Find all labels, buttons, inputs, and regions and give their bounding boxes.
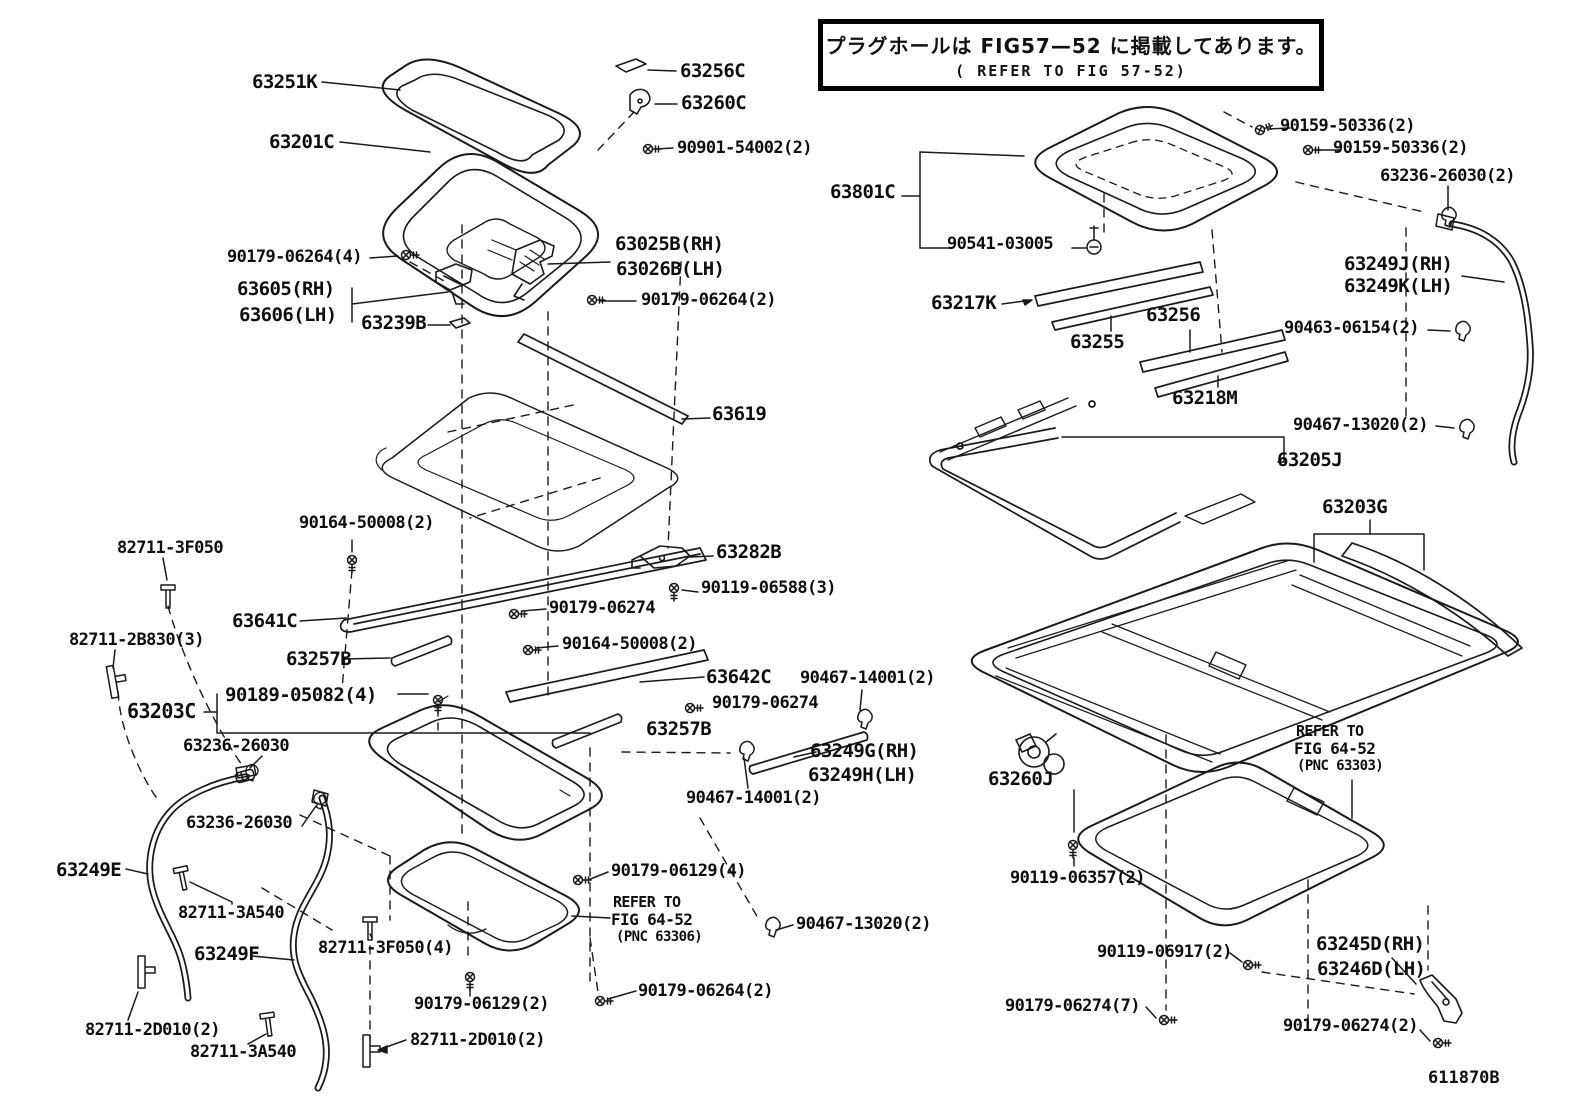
part-label-63249e: 63249E	[56, 861, 121, 880]
part-label-63217k: 63217K	[931, 294, 996, 313]
part-label-refer-306-2: FIG 64-52	[611, 912, 692, 928]
part-label-63205j: 63205J	[1277, 451, 1342, 470]
note-box: プラグホールは FIG57—52 に掲載してあります。 ( REFER TO F…	[818, 19, 1324, 91]
part-label-63257b-b: 63257B	[646, 720, 711, 739]
part-label-82711-3a540-a: 82711-3A540	[178, 905, 284, 922]
part-label-90179-06264-2a: 90179-06264(2)	[641, 292, 776, 309]
clip-fasteners	[106, 207, 1474, 1067]
part-label-90159-50336-b: 90159-50336(2)	[1333, 140, 1468, 157]
part-label-90179-06274-2r: 90179-06274(2)	[1283, 1018, 1418, 1035]
part-label-63203c: 63203C	[127, 701, 196, 721]
part-label-63201c: 63201C	[269, 133, 334, 152]
part-label-63218m: 63218M	[1172, 389, 1237, 408]
part-label-82711-2d010-a: 82711-2D010(2)	[85, 1022, 220, 1039]
part-label-90901-54002: 90901-54002(2)	[677, 140, 812, 157]
part-label-90119-06357: 90119-06357(2)	[1010, 870, 1145, 887]
screw-fasteners	[348, 121, 1452, 1047]
part-label-63236-26030-b: 63236-26030	[186, 815, 292, 832]
rail-63642C	[506, 650, 708, 702]
note-english-text: ( REFER TO FIG 57-52)	[955, 62, 1187, 80]
part-label-63257b-a: 63257B	[286, 650, 351, 669]
part-label-63641c: 63641C	[232, 612, 297, 631]
housing-frame-63203C	[369, 696, 602, 840]
part-label-90179-06264-4: 90179-06264(4)	[227, 249, 362, 266]
part-label-63605-rh: 63605(RH)	[237, 280, 335, 299]
removable-roof-glass-63801C	[1035, 107, 1277, 231]
part-label-82711-3f050-b: 82711-3F050(4)	[318, 940, 453, 957]
part-label-90189-05082: 90189-05082(4)	[225, 686, 377, 705]
part-label-63249h-lh: 63249H(LH)	[808, 766, 916, 785]
clip-63239B	[450, 318, 470, 328]
part-label-63642c: 63642C	[706, 668, 771, 687]
part-label-90179-06129-4: 90179-06129(4)	[611, 863, 746, 880]
part-label-63606-lh: 63606(LH)	[239, 306, 337, 325]
part-label-90119-06588: 90119-06588(3)	[701, 580, 836, 597]
part-label-90179-06274-a: 90179-06274	[549, 600, 655, 617]
part-label-63256: 63256	[1146, 306, 1200, 325]
part-label-63236-26030-2: 63236-26030(2)	[1380, 168, 1515, 185]
part-label-63260c: 63260C	[681, 94, 746, 113]
part-label-63619: 63619	[712, 405, 766, 424]
part-label-63251k: 63251K	[252, 73, 317, 92]
part-label-90463-06154: 90463-06154(2)	[1284, 320, 1419, 337]
part-label-63249g-rh: 63249G(RH)	[810, 742, 918, 761]
part-label-90467-14001-a: 90467-14001(2)	[800, 670, 935, 687]
part-label-63246d-lh: 63246D(LH)	[1317, 960, 1425, 979]
hinge-63605	[436, 264, 472, 304]
clip-63260C	[630, 89, 650, 114]
part-label-refer-306-1: REFER TO	[613, 895, 680, 910]
part-label-refer-303-3: (PNC 63303)	[1297, 759, 1383, 773]
bracket-63245D	[1420, 975, 1462, 1023]
part-label-90119-06917: 90119-06917(2)	[1097, 944, 1232, 961]
part-label-63256c: 63256C	[680, 62, 745, 81]
drip-channel-63619	[518, 334, 688, 424]
part-label-63249k-lh: 63249K(LH)	[1344, 277, 1452, 296]
part-label-refer-306-3: (PNC 63306)	[616, 930, 702, 944]
part-label-82711-2d010-b: 82711-2D010(2)	[410, 1032, 545, 1049]
part-label-82711-3f050-a: 82711-3F050	[117, 540, 223, 557]
part-label-90179-06129-2: 90179-06129(2)	[414, 996, 549, 1013]
part-label-63260j: 63260J	[988, 770, 1053, 789]
part-label-63026b-lh: 63026B(LH)	[616, 260, 724, 279]
part-label-63249f: 63249F	[194, 945, 259, 964]
part-label-90541-03005: 90541-03005	[947, 236, 1053, 253]
part-label-63025b-rh: 63025B(RH)	[615, 235, 723, 254]
shim-63257B-2	[552, 714, 621, 748]
part-label-63239b: 63239B	[361, 314, 426, 333]
part-label-82711-2b830: 82711-2B830(3)	[69, 632, 204, 649]
part-label-63801c: 63801C	[830, 183, 895, 202]
part-label-90164-50008-b: 90164-50008(2)	[562, 636, 697, 653]
sunshade-pnc63303	[1078, 762, 1384, 925]
part-label-90467-14001-b: 90467-14001(2)	[686, 790, 821, 807]
part-label-90467-13020-l: 90467-13020(2)	[796, 916, 931, 933]
sunshade-pnc63306	[388, 842, 579, 950]
part-label-63245d-rh: 63245D(RH)	[1316, 935, 1424, 954]
part-label-90467-13020-r: 90467-13020(2)	[1293, 417, 1428, 434]
part-label-90179-06274-7: 90179-06274(7)	[1005, 998, 1140, 1015]
part-label-refer-303-1: REFER TO	[1296, 724, 1363, 739]
part-label-refer-303-2: FIG 64-52	[1294, 741, 1375, 757]
part-label-63203g: 63203G	[1322, 498, 1387, 517]
part-label-82711-3a540-b: 82711-3A540	[190, 1044, 296, 1061]
part-label-90179-06274-b: 90179-06274	[712, 695, 818, 712]
plate-63256C	[616, 59, 646, 72]
part-label-63282b: 63282B	[716, 543, 781, 562]
drawing-code: 611870B	[1428, 1068, 1500, 1088]
part-label-90164-50008-a: 90164-50008(2)	[299, 515, 434, 532]
plug-90541	[1087, 226, 1101, 254]
shim-63257B-1	[391, 636, 451, 666]
strip-63217K	[1035, 262, 1203, 306]
drip-channel-frame-63205J	[930, 398, 1255, 559]
drain-hose-63249J	[1436, 214, 1530, 462]
sliding-roof-glass-63201C	[383, 154, 598, 316]
part-label-90179-06264-2b: 90179-06264(2)	[638, 983, 773, 1000]
part-label-63249j-rh: 63249J(RH)	[1344, 255, 1452, 274]
strip-63256	[1140, 330, 1285, 372]
housing-frame-63203G	[972, 543, 1522, 772]
part-label-63236-26030-a: 63236-26030	[183, 738, 289, 755]
part-label-63255: 63255	[1070, 333, 1124, 352]
guide-rail-63641C	[341, 548, 706, 632]
note-japanese-text: プラグホールは FIG57—52 に掲載してあります。	[826, 30, 1317, 59]
parts-diagram-page: 63251K63201C63256C63260C90901-54002(2)90…	[0, 0, 1592, 1099]
part-label-90159-50336-a: 90159-50336(2)	[1280, 118, 1415, 135]
